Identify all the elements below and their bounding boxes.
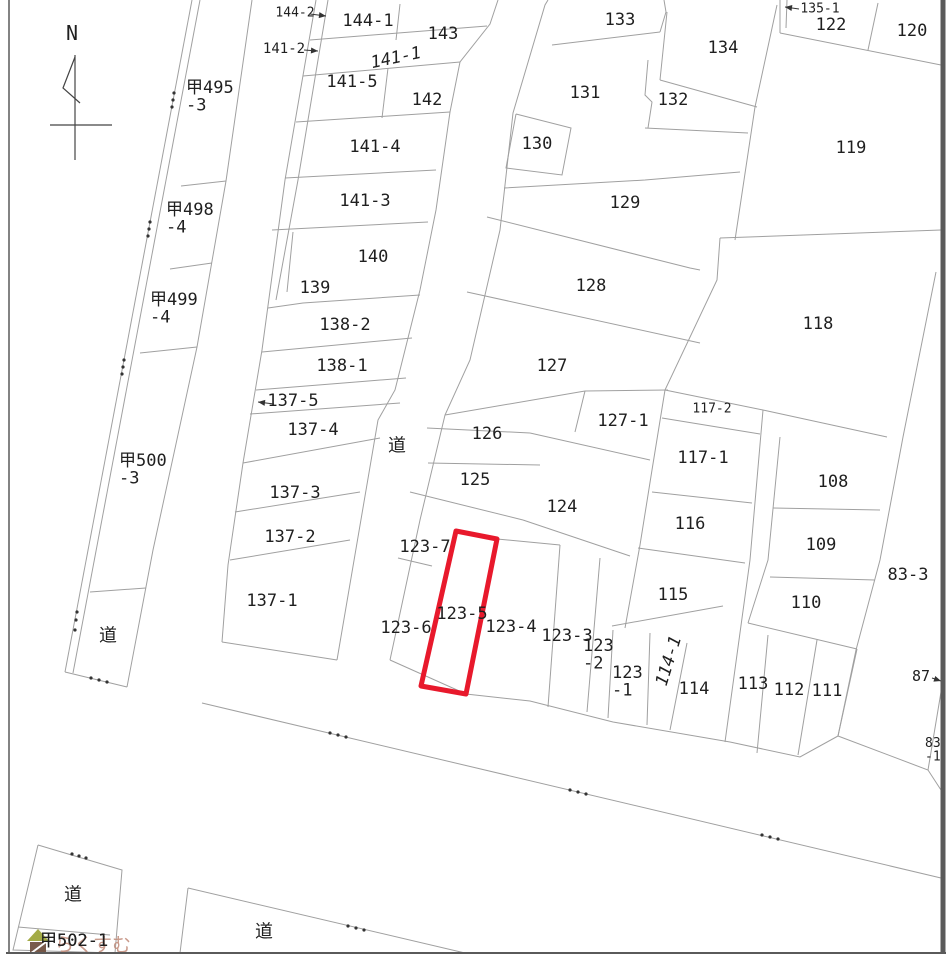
parcel-label-83-1: 83-1 — [925, 736, 941, 764]
parcel-label-83-3: 83-3 — [888, 565, 929, 585]
survey-dot — [760, 833, 763, 836]
parcel-label-125: 125 — [460, 470, 491, 490]
parcel-label-139: 139 — [300, 278, 331, 298]
parcel-label-111: 111 — [812, 681, 843, 701]
survey-dot — [576, 790, 579, 793]
parcel-label-137-3: 137-3 — [269, 483, 320, 503]
parcel-label-123-4: 123-4 — [485, 617, 536, 637]
parcel-label-130: 130 — [522, 134, 553, 154]
parcel-label-135-1: 135-1 — [800, 2, 839, 17]
parcel-label-137-4: 137-4 — [287, 420, 338, 440]
parcel-label-116: 116 — [675, 514, 706, 534]
survey-dot — [73, 628, 76, 631]
survey-dot — [121, 365, 124, 368]
parcel-label-115: 115 — [658, 585, 689, 605]
survey-dot — [354, 926, 357, 929]
cadastral-map: 144-1143141-1141-5142141-4141-3140139138… — [0, 0, 950, 959]
survey-dot — [70, 852, 73, 855]
parcel-label-138-1: 138-1 — [316, 356, 367, 376]
parcel-label-141-2: 141-2 — [263, 41, 305, 57]
parcel-label-127: 127 — [537, 356, 568, 376]
parcel-label-道: 道 — [99, 626, 117, 647]
parcel-label-118: 118 — [803, 314, 834, 334]
parcel-label-141-4: 141-4 — [349, 137, 400, 157]
parcel-label-道: 道 — [388, 436, 406, 457]
parcel-label-123-6: 123-6 — [380, 618, 431, 638]
parcel-label-128: 128 — [576, 276, 607, 296]
parcel-label-144-2: 144-2 — [275, 6, 314, 21]
parcel-label-117-1: 117-1 — [677, 448, 728, 468]
survey-dot — [146, 234, 149, 237]
survey-dot — [346, 924, 349, 927]
survey-dot — [122, 358, 125, 361]
survey-dot — [328, 731, 331, 734]
survey-dot — [147, 227, 150, 230]
survey-dot — [77, 854, 80, 857]
parcel-label-甲502-1-overlay: 甲502-1 — [40, 931, 108, 951]
parcel-label-123-5: 123-5 — [436, 604, 487, 624]
parcel-label-141-3: 141-3 — [339, 191, 390, 211]
parcel-label-132: 132 — [658, 90, 689, 110]
parcel-label-142: 142 — [412, 90, 443, 110]
parcel-label-141-5: 141-5 — [326, 72, 377, 92]
parcel-label-137-5: 137-5 — [267, 391, 318, 411]
survey-dot — [336, 733, 339, 736]
survey-dot — [768, 835, 771, 838]
parcel-label-126: 126 — [472, 424, 503, 444]
parcel-label-119: 119 — [836, 138, 867, 158]
parcel-label-109: 109 — [806, 535, 837, 555]
parcel-label-108: 108 — [818, 472, 849, 492]
parcel-label-87: 87 — [912, 667, 930, 685]
cadastral-map-canvas: 144-1143141-1141-5142141-4141-3140139138… — [0, 0, 950, 959]
parcel-label-124: 124 — [547, 497, 578, 517]
parcel-label-道: 道 — [255, 922, 273, 943]
survey-dot — [89, 676, 92, 679]
parcel-label-134: 134 — [708, 38, 739, 58]
survey-dot — [776, 837, 779, 840]
parcel-label-123-7: 123-7 — [399, 537, 450, 557]
parcel-label-114: 114 — [679, 679, 710, 699]
survey-dot — [75, 610, 78, 613]
parcel-label-113: 113 — [738, 674, 769, 694]
survey-dot — [120, 372, 123, 375]
parcel-label-122: 122 — [816, 15, 847, 35]
parcel-label-137-2: 137-2 — [264, 527, 315, 547]
north-label: N — [66, 21, 78, 45]
survey-dot — [74, 618, 77, 621]
survey-dot — [170, 105, 173, 108]
parcel-label-137-1: 137-1 — [246, 591, 297, 611]
survey-dot — [84, 856, 87, 859]
parcel-label-110: 110 — [791, 593, 822, 613]
survey-dot — [584, 792, 587, 795]
survey-dot — [568, 788, 571, 791]
survey-dot — [172, 91, 175, 94]
survey-dot — [97, 678, 100, 681]
survey-dot — [148, 220, 151, 223]
survey-dot — [362, 928, 365, 931]
parcel-label-120: 120 — [897, 21, 928, 41]
parcel-label-140: 140 — [358, 247, 389, 267]
parcel-label-112: 112 — [774, 680, 805, 700]
parcel-label-117-2: 117-2 — [692, 402, 731, 417]
parcel-label-143: 143 — [428, 24, 459, 44]
survey-dot — [105, 680, 108, 683]
parcel-label-138-2: 138-2 — [319, 315, 370, 335]
parcel-label-127-1: 127-1 — [597, 411, 648, 431]
parcel-label-道: 道 — [64, 885, 82, 906]
parcel-label-129: 129 — [610, 193, 641, 213]
parcel-label-144-1: 144-1 — [342, 11, 393, 31]
survey-dot — [344, 735, 347, 738]
survey-dot — [171, 98, 174, 101]
parcel-label-131: 131 — [570, 83, 601, 103]
parcel-label-133: 133 — [605, 10, 636, 30]
